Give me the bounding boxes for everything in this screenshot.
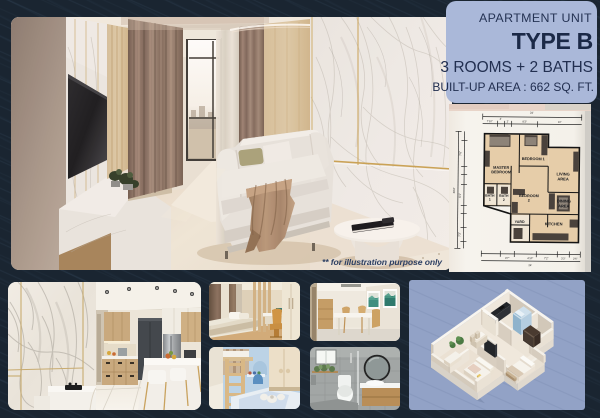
svg-text:KITCHEN: KITCHEN <box>545 221 563 226</box>
svg-text:AREA: AREA <box>557 176 568 181</box>
svg-text:24': 24' <box>530 111 534 115</box>
svg-text:39'6": 39'6" <box>452 187 456 193</box>
svg-text:4'10": 4'10" <box>527 256 533 260</box>
svg-text:4'7": 4'7" <box>505 256 510 260</box>
svg-text:2'6": 2'6" <box>573 257 578 261</box>
svg-text:BEDROOM: BEDROOM <box>491 170 511 174</box>
svg-text:2: 2 <box>503 198 505 202</box>
svg-text:8'2": 8'2" <box>522 120 527 124</box>
svg-text:24': 24' <box>528 263 532 267</box>
svg-text:** for illustration purpose on: ** for illustration purpose only <box>322 257 443 267</box>
svg-text:BEDROOM 1: BEDROOM 1 <box>522 157 545 161</box>
svg-text:7'10": 7'10" <box>487 119 493 123</box>
svg-text:BEDROOM: BEDROOM <box>519 194 539 198</box>
svg-text:10': 10' <box>558 120 562 124</box>
svg-text:3'3": 3'3" <box>561 256 566 260</box>
svg-text:AREA: AREA <box>558 203 569 208</box>
svg-text:7'2": 7'2" <box>457 232 461 237</box>
svg-text:2: 2 <box>528 199 530 203</box>
svg-text:YARD: YARD <box>515 220 525 224</box>
svg-text:7'2": 7'2" <box>544 256 549 260</box>
svg-text:7'6": 7'6" <box>458 151 462 156</box>
svg-text:6'1": 6'1" <box>458 193 462 198</box>
svg-text:1: 1 <box>489 198 491 202</box>
